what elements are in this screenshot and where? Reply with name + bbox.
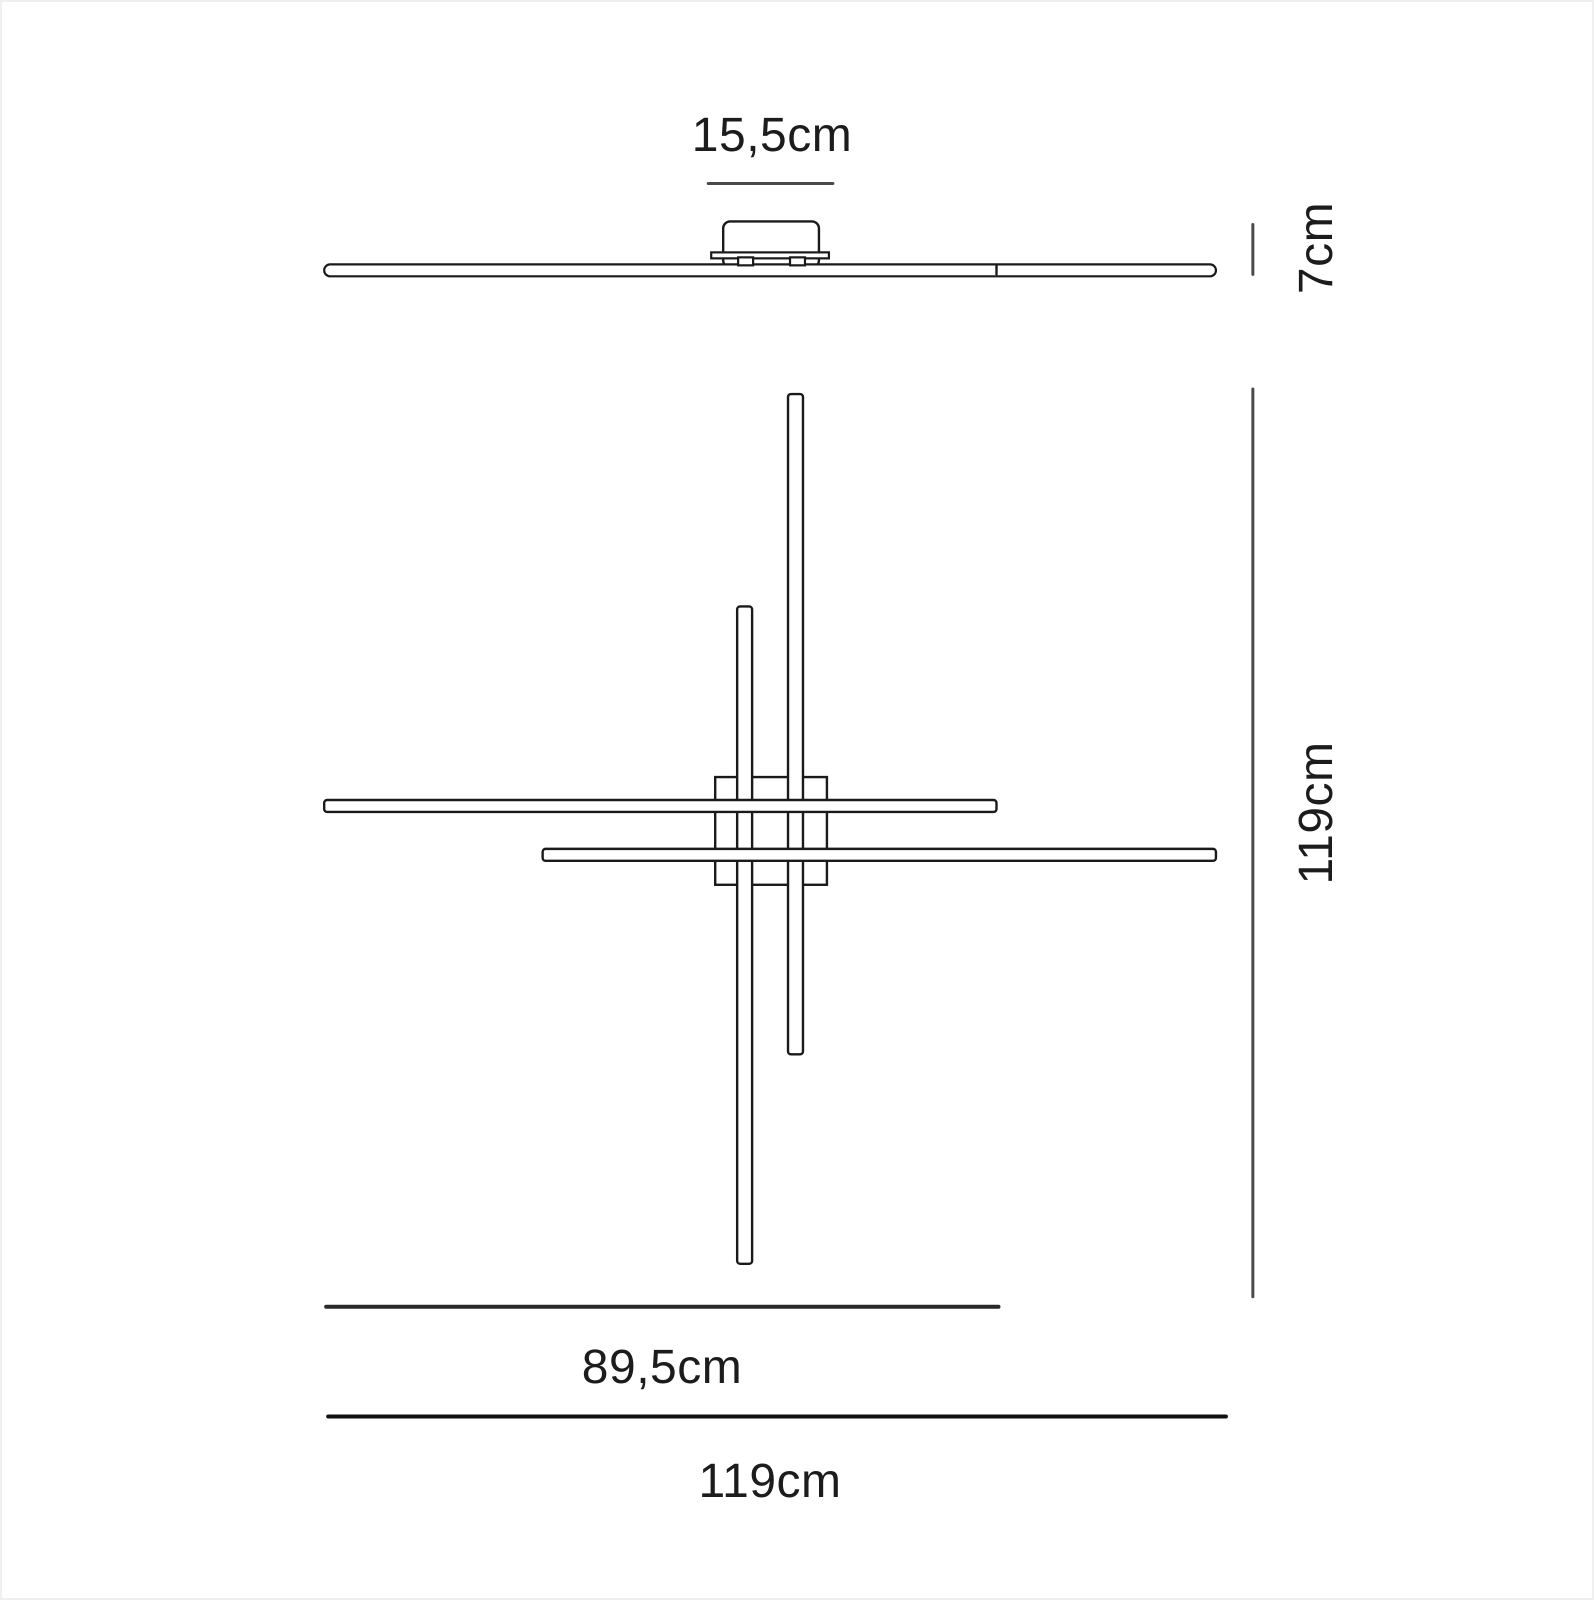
dimension-diagram: 15,5cm 7cm 119cm 89,5cm 119cm xyxy=(0,0,1594,1600)
bar-vertical-long xyxy=(788,394,803,1054)
bar-vertical-short xyxy=(737,606,752,1263)
label-overall-width: 119cm xyxy=(698,1458,841,1506)
lamp-line-drawing xyxy=(2,2,1592,1598)
side-view xyxy=(324,184,1253,277)
lamp-bar-side xyxy=(324,264,1216,276)
canopy-plate-plan xyxy=(715,777,827,885)
label-canopy-width: 15,5cm xyxy=(692,112,852,160)
canopy-foot-left xyxy=(738,257,753,265)
bar-horizontal-upper xyxy=(324,800,996,812)
label-overall-height: 119cm xyxy=(1293,741,1341,884)
bar-horizontal-lower xyxy=(543,849,1216,861)
label-fixture-height: 7cm xyxy=(1293,202,1341,294)
label-bar-length: 89,5cm xyxy=(582,1344,742,1392)
plan-view xyxy=(324,389,1253,1416)
canopy-foot-right xyxy=(790,257,805,265)
canopy-mounting-plate xyxy=(711,252,829,258)
